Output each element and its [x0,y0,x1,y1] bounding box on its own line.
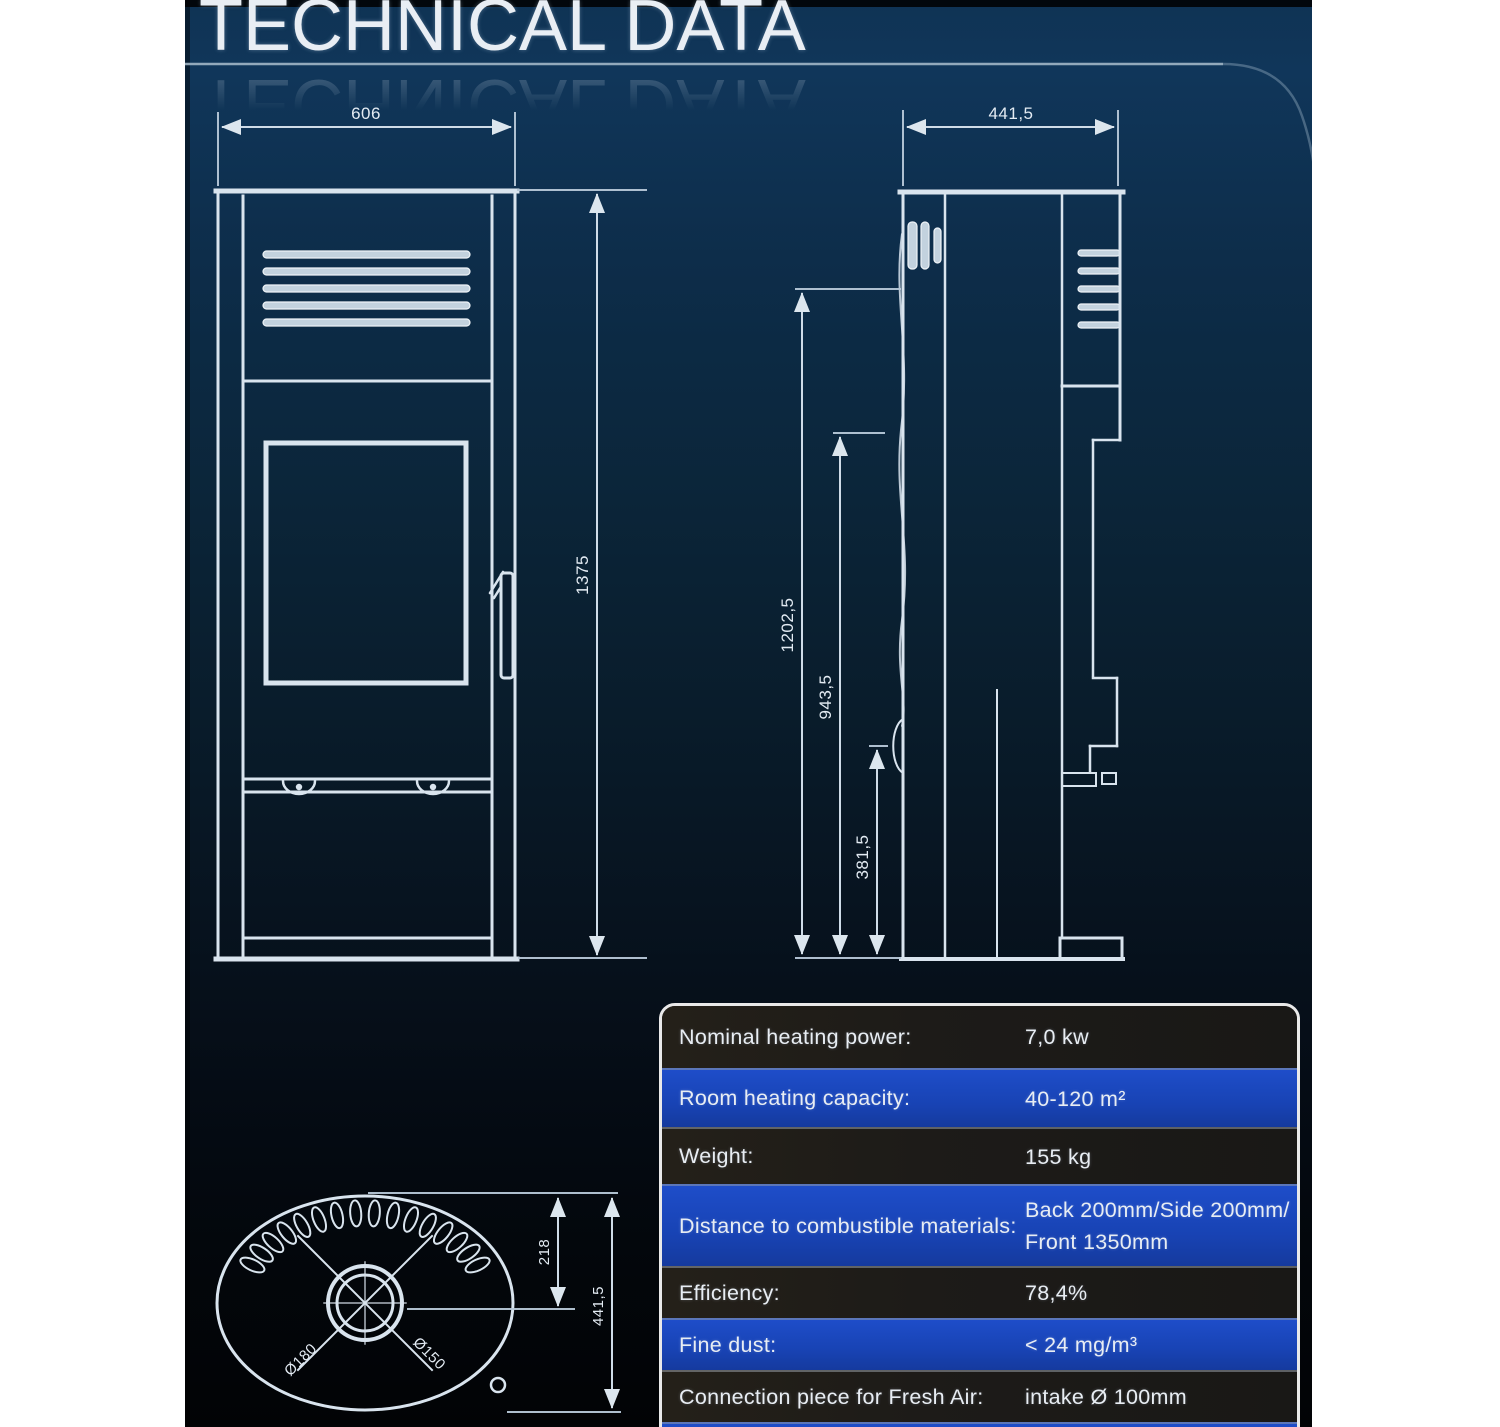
spec-label: Room heating capacity: [662,1086,1025,1111]
table-row: Efficiency: 78,4% [662,1266,1297,1318]
front-door-window [266,443,466,683]
side-plinth [1060,938,1122,959]
bottom-rim-detail [491,1378,505,1392]
spec-label: Distance to combustible materials: [662,1214,1025,1239]
side-foot-detail [1062,773,1096,786]
bottom-dimensions: 218 441,5 [368,1193,621,1412]
spec-value-line2: Front 1350mm [1025,1226,1297,1258]
spec-label: Weight: [662,1144,1025,1169]
table-row: Weight: 155 kg [662,1127,1297,1184]
spec-label: Connection piece for Fresh Air: [662,1385,1025,1410]
side-flue-pipe-curve [899,234,905,726]
dim-side-height-low: 381,5 [853,834,872,879]
dim-flue-diameter: Ø180 [281,1340,320,1379]
side-flue-collar [908,222,941,269]
left-edge-strip [185,0,190,1427]
front-height-dimension: 1375 [517,190,647,958]
table-row: Fine dust: < 24 mg/m³ [662,1318,1297,1370]
dim-front-height: 1375 [573,555,592,595]
hinge-clip-left [283,781,315,794]
bottom-view-drawing: Ø180 Ø150 218 441,5 [217,1193,621,1412]
front-vent-slats [263,251,470,326]
spec-label: Fine dust: [662,1333,1025,1358]
table-row: Connection piece for Fresh Air: intake Ø… [662,1370,1297,1422]
page-title: TECHNICAL DATA [199,0,806,64]
spec-value: intake Ø 100mm [1025,1381,1297,1413]
spec-label: Nominal heating power: [662,1025,1025,1050]
spec-label: Efficiency: [662,1281,1025,1306]
front-door-handle [490,572,513,678]
side-height-dimensions: 1202,5 943,5 381,5 [778,289,901,958]
technical-data-sheet: TECHNICAL DATA TECHNICAL DATA 606 [0,0,1500,1427]
table-row: Nominal heating power: 7,0 kw [662,1006,1297,1068]
table-row-stub [662,1422,1297,1427]
side-depth-dimension: 441,5 [903,104,1118,186]
side-foot-detail-small [1102,773,1116,784]
dim-flue-inner-diameter: Ø150 [409,1334,448,1373]
dim-bottom-depth: 441,5 [590,1286,607,1326]
dim-side-height-total: 1202,5 [778,598,797,653]
spec-value: 155 kg [1025,1141,1297,1173]
dim-side-depth: 441,5 [988,104,1033,123]
dim-bottom-top-to-center: 218 [536,1239,553,1266]
table-row: Room heating capacity: 40-120 m² [662,1068,1297,1127]
dim-side-height-mid: 943,5 [816,674,835,719]
side-rear-port-arc [893,719,903,773]
spec-value: < 24 mg/m³ [1025,1329,1297,1361]
bottom-flue-circles [298,1236,432,1370]
page-title-reflection: TECHNICAL DATA [199,66,806,142]
hinge-clip-right [417,781,449,794]
spec-value: 7,0 kw [1025,1021,1297,1053]
table-row: Distance to combustible materials: Back … [662,1184,1297,1266]
bottom-outline-ellipse [217,1196,513,1410]
front-base-divider [243,779,492,794]
spec-value-line1: Back 200mm/Side 200mm/ [1025,1194,1297,1226]
bottom-vent-slots [238,1200,491,1275]
side-vent-slats [1078,250,1120,328]
content-panel: TECHNICAL DATA TECHNICAL DATA 606 [185,0,1312,1427]
front-view-drawing: 606 [216,104,647,960]
spec-value: Back 200mm/Side 200mm/ Front 1350mm [1025,1194,1297,1258]
spec-value: 78,4% [1025,1277,1297,1309]
spec-value: 40-120 m² [1025,1083,1297,1115]
spec-table: Nominal heating power: 7,0 kw Room heati… [659,1003,1300,1427]
side-view-drawing: 441,5 [778,104,1123,959]
